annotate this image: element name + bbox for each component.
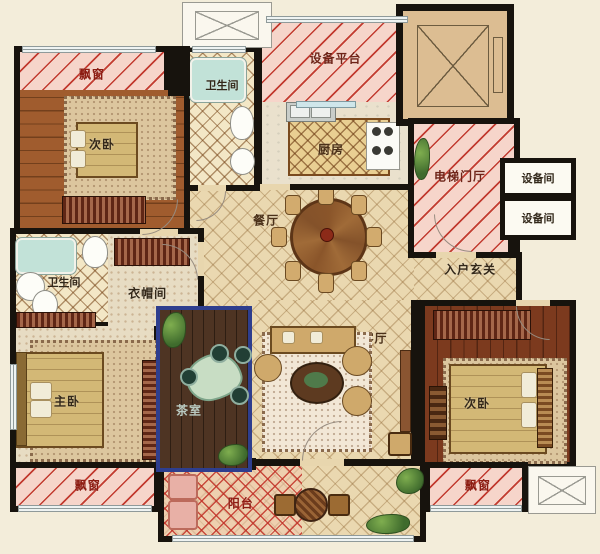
tea-stool: [180, 368, 198, 386]
bay-window-label: 飘窗: [79, 66, 105, 83]
elevator-icon: [417, 25, 489, 107]
kitchen: 厨房: [256, 102, 418, 190]
bed-pillow: [521, 402, 537, 428]
toilet: [230, 106, 254, 140]
burner: [372, 127, 381, 136]
balcony-stool: [274, 494, 296, 516]
headboard: [537, 368, 553, 448]
plant: [366, 514, 410, 534]
ottoman: [388, 432, 412, 456]
tea-stool: [234, 346, 252, 364]
bathroom-top: 卫生间: [184, 46, 260, 191]
bed-pillow: [70, 150, 86, 168]
elevator-shaft: [396, 4, 514, 126]
equipment-platform: 设备平台: [256, 16, 418, 108]
equipment-room-label: 设备间: [522, 170, 555, 186]
elevator-rail: [493, 37, 503, 93]
bedroom-right: 次卧: [418, 300, 576, 468]
dining-table-center: [320, 228, 334, 242]
armchair: [342, 346, 372, 376]
dining-chair: [366, 227, 382, 247]
potted-plant: [414, 138, 430, 180]
tea-room: 茶室: [156, 306, 252, 472]
sink: [230, 148, 255, 175]
burner: [384, 146, 393, 155]
master-bedroom-label: 主卧: [54, 393, 80, 410]
wardrobe: [62, 196, 146, 224]
door-opening: [198, 242, 204, 276]
window: [266, 16, 408, 23]
dining-chair: [271, 227, 287, 247]
tea-room-label: 茶室: [176, 401, 202, 418]
entry-hall-label: 入户玄关: [444, 261, 496, 278]
laundry-unit: [168, 500, 198, 530]
door-opening: [260, 184, 290, 190]
balcony: 阳台: [158, 466, 426, 542]
bed-pillow: [521, 372, 537, 398]
bathtub: [16, 238, 76, 274]
dining-chair: [351, 195, 367, 215]
ac-platform: [528, 466, 596, 514]
wall-segment: [168, 46, 190, 96]
tea-stool: [230, 386, 249, 405]
ac-platform-icon: [538, 476, 586, 505]
dining-chair: [285, 261, 301, 281]
bay-window-label: 飘窗: [465, 477, 491, 494]
door-opening: [436, 252, 476, 258]
equipment-room-upper: 设备间: [500, 158, 576, 198]
plant: [162, 312, 186, 348]
window: [10, 364, 17, 430]
sofa-pillow: [310, 331, 323, 344]
bathroom-top-label: 卫生间: [206, 77, 239, 93]
wall-segment: [508, 236, 520, 258]
tv-cabinet: [400, 350, 411, 432]
elevator-lobby-label: 电梯门厅: [434, 168, 486, 185]
window: [296, 101, 356, 108]
window: [430, 505, 522, 512]
dining-chair: [351, 261, 367, 281]
window: [172, 535, 414, 542]
bay-window-label: 飘窗: [75, 477, 101, 494]
equipment-room-label: 设备间: [522, 210, 555, 226]
dining-room: 餐厅: [190, 185, 414, 310]
dining-chair: [318, 273, 334, 293]
window: [192, 46, 246, 53]
equipment-platform-label: 设备平台: [309, 50, 361, 67]
headboard: [16, 352, 27, 446]
window: [22, 46, 156, 53]
burner: [372, 146, 381, 155]
bathroom-left-label: 卫生间: [47, 274, 80, 290]
laundry-unit: [168, 474, 198, 500]
cloakroom-label: 衣帽间: [128, 285, 167, 302]
stove: [366, 122, 400, 170]
floor-plan: 餐厅 入户玄关 客厅 飘窗 次卧: [0, 0, 600, 554]
armchair: [342, 386, 372, 416]
plant: [396, 468, 424, 494]
bed-pillow: [70, 130, 86, 148]
bedroom-label: 次卧: [89, 136, 115, 153]
plant: [218, 444, 248, 466]
burner: [384, 127, 393, 136]
balcony-label: 阳台: [228, 495, 254, 512]
window: [18, 505, 152, 512]
dining-chair: [285, 195, 301, 215]
sofa-pillow: [282, 331, 295, 344]
equipment-room-lower: 设备间: [500, 196, 576, 240]
tea-stool: [210, 344, 229, 363]
coffee-table-top: [304, 372, 328, 388]
kitchen-label: 厨房: [318, 140, 344, 157]
armchair: [254, 354, 282, 382]
master-bedroom: 主卧: [10, 326, 160, 468]
bed-pillow: [30, 400, 52, 418]
toilet: [82, 236, 108, 268]
bed-pillow: [30, 382, 52, 400]
balcony-table: [294, 488, 328, 522]
ac-platform-icon: [195, 11, 259, 40]
ac-platform: [182, 2, 272, 48]
bench: [429, 386, 447, 440]
dining-room-label: 餐厅: [253, 212, 279, 229]
bay-window-top-left: 飘窗: [14, 46, 170, 96]
bedroom-right-label: 次卧: [464, 394, 490, 411]
balcony-stool: [328, 494, 350, 516]
storage-divider: [16, 312, 96, 328]
